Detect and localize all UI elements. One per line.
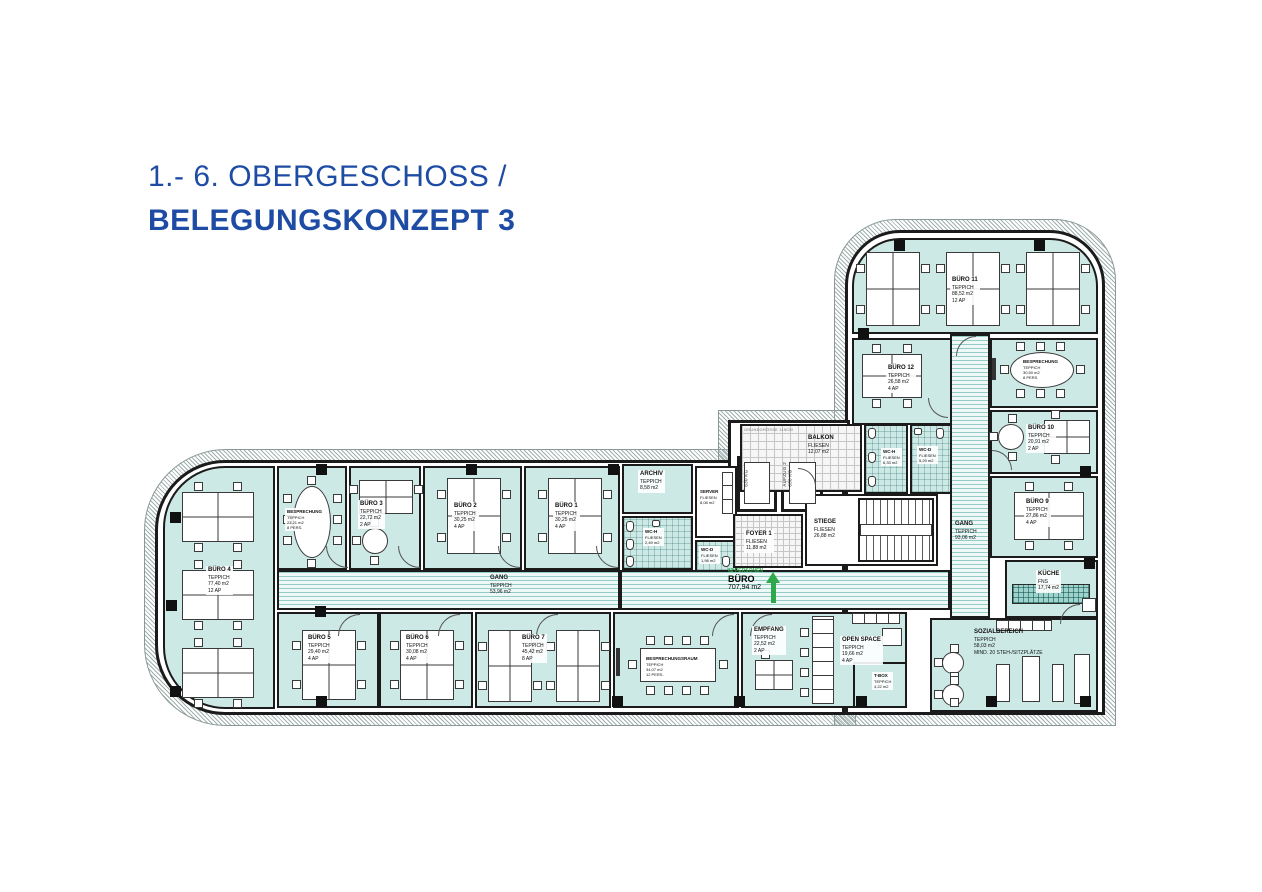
toilet [722, 556, 730, 567]
total-label: BÜRO [728, 574, 763, 584]
toilet [868, 428, 876, 439]
elevator-label-2: AUFZUG 2630 KG [782, 462, 793, 487]
toilet [626, 521, 634, 532]
reception-desk [755, 660, 793, 690]
room-label-wc-d-mitte: WC-DFLIESEN1,98 m2 [699, 546, 720, 564]
standing-table [996, 664, 1010, 702]
elevator-label-1: AUFZUG 1630 KG [738, 462, 749, 487]
toilet [626, 556, 634, 567]
room-label-stiege: STIEGEFLIESEN26,88 m2 [812, 518, 838, 541]
page-title: 1.- 6. OBERGESCHOSS / BELEGUNGSKONZEPT 3 [148, 160, 515, 238]
room-label-gang-west: GANGTEPPICH53,96 m2 [488, 574, 514, 597]
room-label-kueche: KÜCHEFNS17,74 m2 [1036, 570, 1061, 593]
room-label-buero-9: BÜRO 9TEPPICH27,86 m24 AP [1024, 498, 1051, 527]
room-label-buero-10: BÜRO 10TEPPICH20,91 m22 AP [1026, 424, 1056, 453]
appliance [1082, 598, 1096, 612]
floorplan-page: 1.- 6. OBERGESCHOSS / BELEGUNGSKONZEPT 3… [0, 0, 1262, 892]
chair [352, 536, 361, 545]
chair [1000, 365, 1009, 374]
chair [283, 494, 292, 503]
chair [934, 690, 943, 699]
corridor-gang-ost [950, 334, 990, 618]
room-label-buero-1: BÜRO 1TEPPICH30,25 m24 AP [553, 502, 580, 531]
column [986, 696, 997, 707]
room-label-server: SERVERFLIESEN8,08 m2 [698, 488, 720, 506]
shaft-box [882, 628, 902, 646]
room-label-gang-ost: GANGTEPPICH93,06 m2 [953, 520, 979, 543]
column [858, 328, 869, 339]
column [612, 696, 623, 707]
corridor-gang-west [277, 570, 620, 610]
column [316, 696, 327, 707]
sink [652, 520, 660, 527]
chair [800, 628, 809, 637]
room-label-buero-7: BÜRO 7TEPPICH45,42 m28 AP [520, 634, 547, 663]
room-label-wc-h: WC-HFLIESEN6,33 m2 [881, 448, 902, 466]
room-label-empfang: EMPFANGTEPPICH22,52 m22 AP [752, 626, 786, 655]
column [1080, 696, 1091, 707]
standing-table [1022, 656, 1040, 702]
column [608, 464, 619, 475]
desk-cluster [866, 252, 920, 326]
column [856, 696, 867, 707]
chair [333, 494, 342, 503]
room-label-buero-6: BÜRO 6TEPPICH30,08 m24 AP [404, 634, 431, 663]
room-label-wc-d: WC-DFLIESEN5,29 m2 [917, 446, 938, 464]
chair [646, 636, 655, 645]
column [316, 464, 327, 475]
desk-cluster [182, 648, 254, 698]
stair-landing [860, 524, 932, 536]
column [894, 240, 905, 251]
column [166, 600, 177, 611]
column [734, 696, 745, 707]
room-label-sozialbereich: SOZIALBEREICHTEPPICH58,03 m2MIND. 20 STE… [972, 628, 1045, 657]
desk-cluster [1026, 252, 1080, 326]
sink [914, 428, 922, 435]
chair [1016, 342, 1025, 351]
column [1084, 558, 1095, 569]
room-label-buero-12: BÜRO 12TEPPICH26,58 m24 AP [886, 364, 916, 393]
room-label-besprechungsraum: BESPRECHUNGSRAUMTEPPICH34,07 m212 PERS. [644, 655, 700, 678]
room-label-wc-h-mitte: WC-HFLIESEN2,49 m2 [643, 528, 664, 546]
room-label-archiv: ARCHIVTEPPICH8,58 m2 [638, 470, 665, 493]
desk-cluster [556, 630, 600, 702]
presentation-screen [992, 358, 996, 380]
room-label-buero-2: BÜRO 2TEPPICH30,25 m24 AP [452, 502, 479, 531]
total-office-annotation: 62 PERSONEN BÜRO 707,94 m2 [728, 568, 763, 591]
round-table [998, 424, 1024, 450]
toilet [868, 452, 876, 463]
room-label-balkon: BALKONFLIESEN12,07 m2 [806, 434, 836, 457]
room-label-besprechung-nord: BESPRECHUNGTEPPICH30,50 m28 PERS. [1021, 358, 1060, 381]
toilet [868, 476, 876, 487]
chair [934, 658, 943, 667]
column [466, 464, 477, 475]
room-label-besprechung-west: BESPRECHUNGTEPPICH23,21 m28 PERS. [285, 508, 324, 531]
room-label-openspace: OPEN SPACETEPPICH19,66 m24 AP [840, 636, 883, 665]
presentation-screen [616, 648, 620, 676]
total-area: 707,94 m2 [728, 584, 763, 591]
column [170, 686, 181, 697]
chair [989, 432, 998, 441]
room-label-buero-4: BÜRO 4TEPPICH77,40 m212 AP [206, 566, 233, 595]
column [170, 512, 181, 523]
openspace-bench [812, 616, 834, 704]
column [1034, 240, 1045, 251]
room-label-buero-11: BÜRO 11TEPPICH88,52 m212 AP [950, 276, 980, 305]
room-label-foyer: FOYER 1FLIESEN11,88 m2 [744, 530, 774, 553]
lockers [852, 613, 900, 624]
desk-cluster [182, 492, 254, 542]
room-label-tbox: T-BOXTEPPICH4,22 m2 [872, 672, 893, 690]
title-line-1: 1.- 6. OBERGESCHOSS / [148, 160, 515, 194]
up-arrow-icon [766, 572, 781, 604]
grundgroesse-note: GRUNDGRÖSSE 115CM [744, 427, 793, 432]
chair [646, 686, 655, 695]
column [1080, 466, 1091, 477]
corridor-connector [620, 570, 950, 610]
round-table [942, 652, 964, 674]
toilet [936, 428, 944, 439]
chair [628, 660, 637, 669]
toilet [626, 539, 634, 550]
round-table [362, 528, 388, 554]
column [315, 606, 326, 617]
room-label-buero-3: BÜRO 3TEPPICH22,72 m22 AP [358, 500, 385, 529]
chair [1016, 389, 1025, 398]
title-line-2: BELEGUNGSKONZEPT 3 [148, 204, 515, 238]
server-rack [722, 472, 733, 514]
room-label-buero-5: BÜRO 5TEPPICH29,40 m24 AP [306, 634, 333, 663]
standing-table [1052, 664, 1064, 702]
chair [307, 476, 316, 485]
